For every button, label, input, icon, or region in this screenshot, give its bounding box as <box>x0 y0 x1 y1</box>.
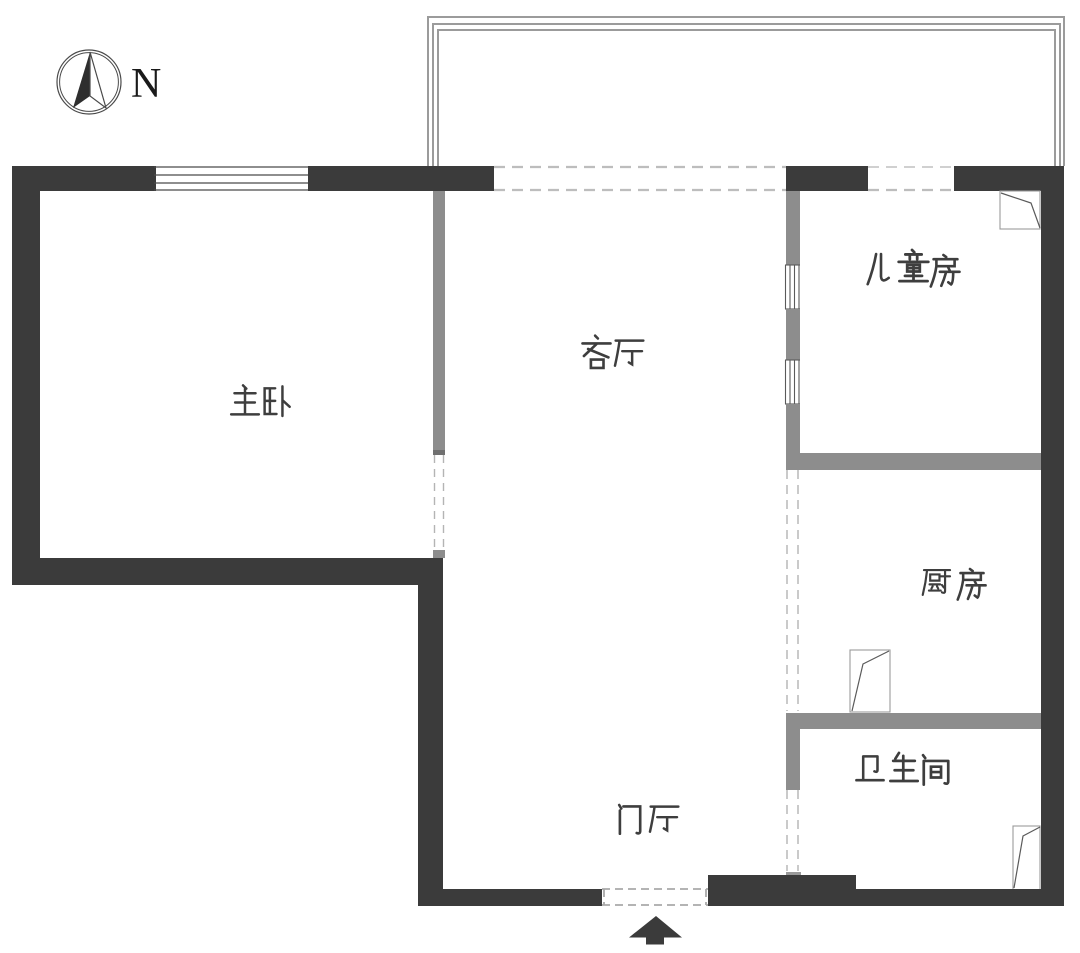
svg-text:N: N <box>131 61 161 107</box>
